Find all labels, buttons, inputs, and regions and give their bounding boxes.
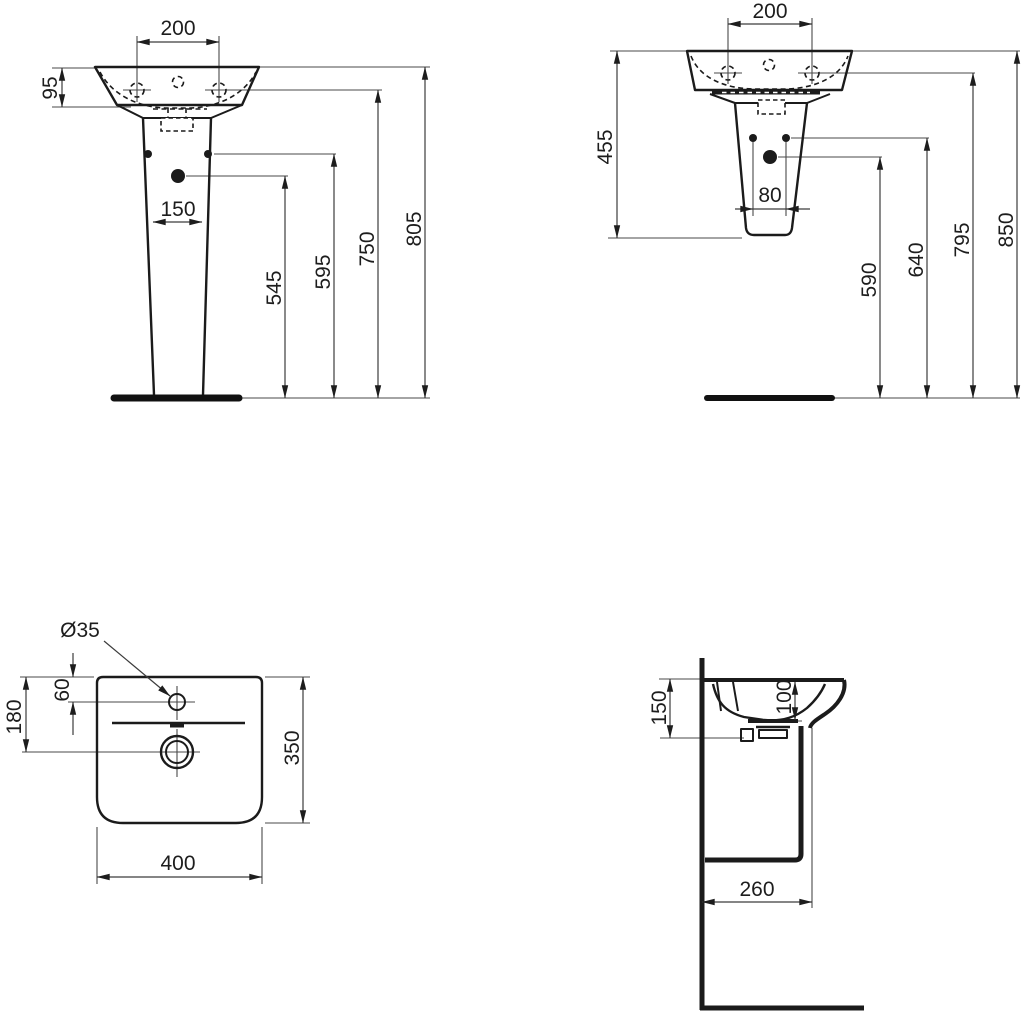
front-fixing-hole-left xyxy=(144,150,152,158)
dim-label-545: 545 xyxy=(263,270,286,305)
dim-label-rear-200: 200 xyxy=(752,0,787,23)
front-basin-underside xyxy=(117,105,242,118)
rear-drain-fitting-dashed xyxy=(758,100,785,114)
dim-label-tap-diameter: Ø35 xyxy=(60,619,100,642)
dim-label-150-pedestal: 150 xyxy=(160,198,195,221)
dim-label-455: 455 xyxy=(594,129,617,164)
front-fixing-hole-right xyxy=(204,150,212,158)
rear-semipedestal-outline xyxy=(735,103,807,235)
dim-label-front-200: 200 xyxy=(160,17,195,40)
dim-label-100: 100 xyxy=(773,679,796,714)
front-pedestal-outline xyxy=(143,118,211,395)
front-view-basin-on-pedestal: 200 95 150 545 595 750 805 xyxy=(39,17,430,398)
rear-extension-lines xyxy=(608,18,1020,398)
front-drain-fitting-dashed xyxy=(161,118,193,131)
washbasin-dimension-drawing: 200 95 150 545 595 750 805 xyxy=(0,0,1024,1013)
dim-label-180: 180 xyxy=(3,699,26,734)
front-drain-hole xyxy=(171,169,185,183)
dim-label-805: 805 xyxy=(403,211,426,246)
dim-label-80: 80 xyxy=(758,184,781,207)
section-view-side-profile: 150 100 260 xyxy=(648,658,864,1010)
dim-label-350: 350 xyxy=(281,730,304,765)
front-overflow-hole xyxy=(173,77,184,88)
rear-basin-outline xyxy=(687,51,852,90)
dim-label-260: 260 xyxy=(739,878,774,901)
rear-drain-hole xyxy=(763,150,777,164)
dim-label-590: 590 xyxy=(858,262,881,297)
dim-label-850: 850 xyxy=(995,212,1018,247)
dim-label-150-section: 150 xyxy=(648,690,671,725)
rear-view-basin-semipedestal: 200 455 80 590 640 795 850 xyxy=(594,0,1020,398)
section-front-outer-profile xyxy=(810,680,845,728)
rear-fixing-hole-left xyxy=(749,134,757,142)
plan-view-basin-top: Ø35 60 180 350 400 xyxy=(3,619,310,884)
dim-label-795: 795 xyxy=(951,222,974,257)
plan-basin-outline xyxy=(97,677,262,823)
dim-label-750: 750 xyxy=(356,231,379,266)
front-overflow-slot-dashed xyxy=(153,108,207,118)
technical-drawing-page: 200 95 150 545 595 750 805 xyxy=(0,0,1024,1013)
rear-overflow-hole xyxy=(764,60,775,71)
dim-label-595: 595 xyxy=(312,254,335,289)
dim-label-400: 400 xyxy=(160,852,195,875)
dim-label-95: 95 xyxy=(39,76,62,99)
section-trap-left xyxy=(741,729,753,741)
rear-fixing-hole-right xyxy=(782,134,790,142)
section-bowl-inner-profile xyxy=(713,684,825,720)
section-trap-band xyxy=(759,730,787,738)
dim-label-60: 60 xyxy=(51,678,74,701)
front-basin-outline xyxy=(95,67,259,105)
dim-label-640: 640 xyxy=(905,242,928,277)
section-back-channel xyxy=(717,682,738,711)
section-shroud-front xyxy=(705,726,801,860)
plan-leader-tap-diameter xyxy=(104,641,170,696)
